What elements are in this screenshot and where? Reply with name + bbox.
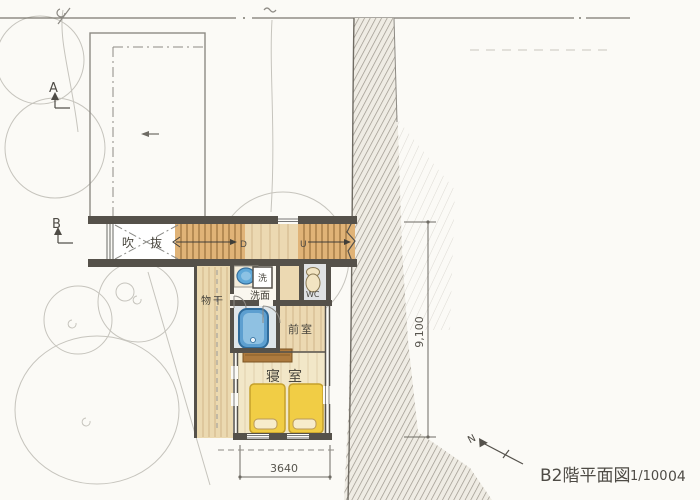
north-label: N: [466, 433, 478, 446]
corridor-window: [278, 216, 298, 224]
washroom-label: 洗面: [250, 290, 270, 302]
west-window: [231, 366, 238, 379]
section-a-label: A: [49, 81, 58, 96]
title-block: B2階平面図 1/100 04: [540, 466, 686, 486]
direction-arrow-left-icon: [141, 131, 159, 137]
west-window: [231, 393, 238, 406]
site-boundary-line: [0, 8, 630, 50]
dimension-bottom-value: 3640: [270, 462, 298, 475]
bedroom-suite: [194, 260, 332, 440]
toilet: [306, 268, 320, 293]
north-arrow: N: [466, 433, 523, 464]
void-window: [107, 224, 113, 259]
bedroom-label: 寝室: [266, 368, 310, 385]
futon-left: [250, 384, 285, 433]
anteroom-label: 前室: [288, 322, 314, 336]
boundary-marker-icon: [264, 8, 276, 12]
section-marker-b: B: [52, 217, 73, 243]
dimension-bottom: 3640: [218, 445, 334, 480]
pillow: [293, 419, 316, 429]
wc-label: WC: [306, 290, 320, 299]
corridor-wall-north: [88, 216, 357, 224]
stair-landing: [245, 224, 298, 260]
section-b-label: B: [52, 217, 61, 232]
stair-down-label: D: [240, 240, 247, 250]
washer-label: 洗: [258, 272, 267, 284]
ground-hatch: [344, 18, 492, 500]
dimension-vertical-value: 9,100: [413, 316, 426, 348]
upper-level-outline: [90, 33, 205, 217]
floor-plan-sheet: 9,100 3640 A B N 吹抜 物干 洗面 洗 WC 前室 寝室 D U: [0, 0, 700, 500]
lower-hall-floor: [280, 266, 300, 302]
sheet-number: 04: [668, 469, 686, 485]
plan-drawing: 9,100 3640 A B N 吹抜 物干 洗面 洗 WC 前室 寝室 D U: [0, 0, 700, 500]
void-label: 吹抜: [122, 236, 178, 250]
futon-right: [289, 384, 323, 433]
drawing-title: B2階平面図: [540, 466, 630, 486]
pillow: [254, 419, 277, 429]
boundary-marker-icon: [57, 8, 70, 24]
drying-deck-label: 物干: [201, 294, 225, 307]
bathtub: [239, 309, 268, 348]
drawing-scale: 1/100: [630, 469, 667, 484]
stair-up-label: U: [300, 240, 307, 250]
east-window: [323, 386, 331, 404]
